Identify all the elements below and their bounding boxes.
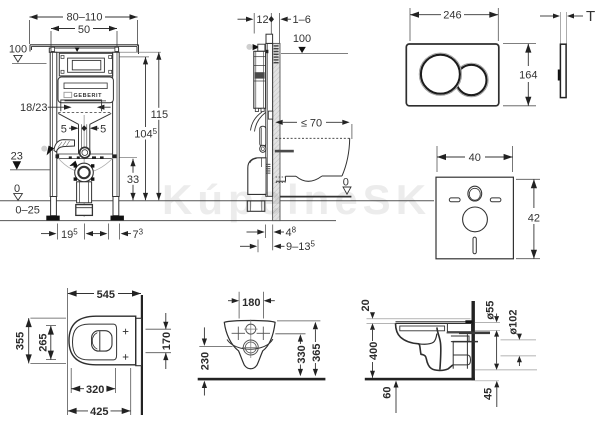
svg-text:23: 23 (11, 151, 23, 163)
svg-text:12: 12 (256, 14, 268, 26)
svg-text:164: 164 (519, 69, 537, 81)
svg-text:246: 246 (443, 10, 461, 22)
svg-text:20: 20 (360, 299, 372, 311)
svg-text:330: 330 (296, 345, 308, 363)
svg-text:100: 100 (9, 44, 27, 56)
svg-text:100: 100 (293, 33, 311, 45)
svg-text:GEBERIT: GEBERIT (74, 93, 103, 99)
svg-text:0–25: 0–25 (15, 205, 39, 217)
svg-text:18/23: 18/23 (20, 102, 48, 114)
svg-text:265: 265 (37, 333, 49, 351)
svg-text:230: 230 (200, 352, 212, 370)
svg-text:50: 50 (78, 24, 90, 36)
svg-text:≤ 70: ≤ 70 (301, 117, 322, 129)
svg-text:170: 170 (161, 332, 173, 350)
svg-text:ø102: ø102 (507, 310, 519, 335)
svg-text:5: 5 (61, 124, 67, 136)
svg-text:45: 45 (483, 388, 495, 400)
svg-text:60: 60 (382, 387, 394, 399)
svg-text:1–6: 1–6 (293, 14, 311, 26)
svg-text:320: 320 (86, 384, 104, 396)
svg-text:80–110: 80–110 (67, 12, 103, 24)
svg-text:545: 545 (97, 289, 115, 301)
svg-text:180: 180 (242, 297, 260, 309)
svg-text:365: 365 (311, 344, 323, 362)
svg-text:115: 115 (151, 109, 169, 121)
svg-text:40: 40 (469, 152, 481, 164)
svg-text:355: 355 (15, 332, 27, 350)
svg-text:400: 400 (368, 342, 380, 360)
svg-text:42: 42 (528, 212, 540, 224)
svg-text:KúpelneSK: KúpelneSK (162, 176, 431, 223)
svg-text:T: T (586, 8, 595, 25)
svg-text:33: 33 (127, 174, 139, 186)
svg-text:5: 5 (100, 124, 106, 136)
svg-text:425: 425 (90, 406, 108, 418)
